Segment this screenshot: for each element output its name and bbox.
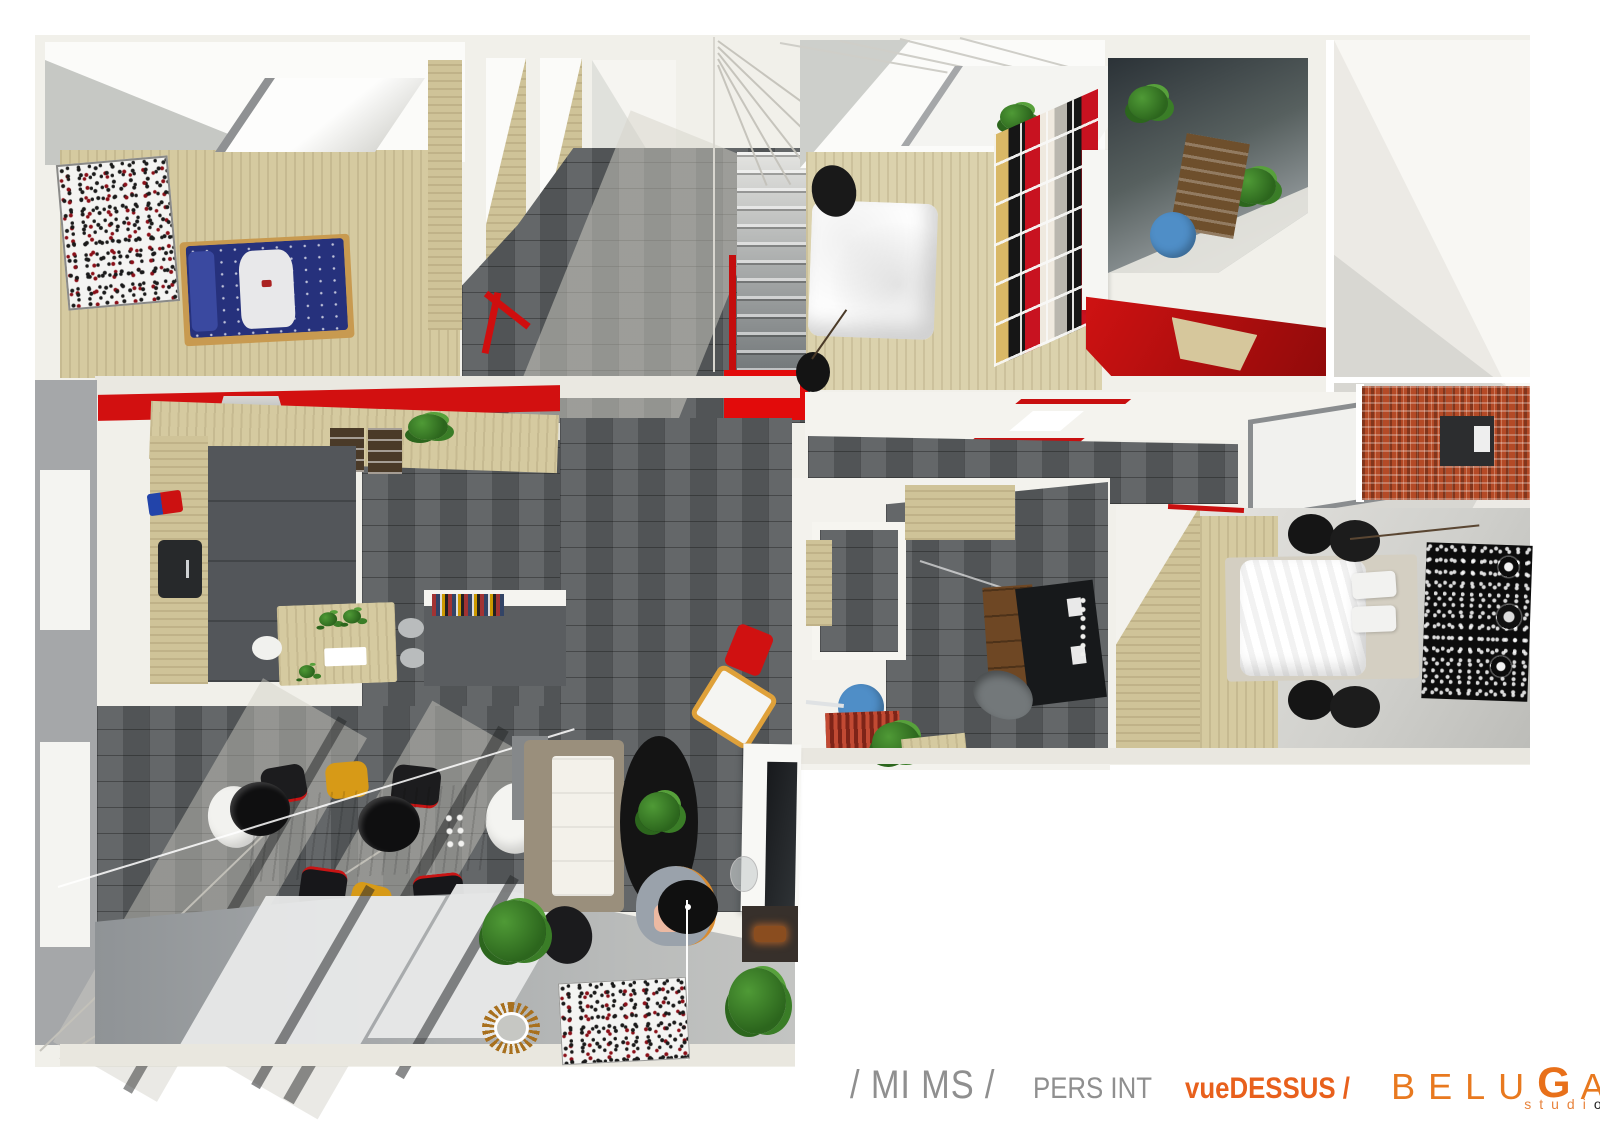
ensuite-plant-1 [1128,86,1168,120]
staircase [737,152,807,370]
sofa [524,740,624,912]
sun-mirror [482,1002,540,1054]
robot-chest-dot [261,280,271,288]
coffee-table-plant [638,792,680,832]
pendant-lamp-2 [358,796,420,852]
kids-wall-art [56,155,180,310]
attic-panel-1-white [486,58,526,225]
side-table-black [658,880,718,934]
brick-wall [1362,386,1530,500]
island-tray [324,647,367,666]
guest-wall-strip [1116,506,1200,758]
sideboard-base [424,606,566,686]
island-chair-white [252,636,282,660]
project-code: / MI MS / [850,1063,995,1108]
kitchen-island [277,602,398,686]
sofa-cushions [552,756,614,896]
guest-pillow-1 [1351,570,1397,599]
living-plant-small [728,968,786,1034]
brand-subtitle: studio [1524,1096,1600,1112]
red-cabinet-wood-inset [1172,311,1258,370]
guest-pillow-2 [1352,605,1397,633]
bathroom-wood-panel [806,540,832,626]
brand-block: BELUGA studio [1391,1050,1600,1108]
sink-faucet-chrome [186,560,189,578]
master-bed [808,200,939,340]
guest-pouf-4 [1330,686,1380,728]
guest-wall-wedge [1116,506,1200,645]
brand-subtitle-o: o [1594,1096,1600,1112]
pendant-lamp-1 [230,782,290,836]
brick-room-tv-screen [1474,426,1490,452]
brand-subtitle-text: studi [1524,1096,1594,1112]
left-window-1 [40,470,90,630]
kids-pillow [188,251,218,332]
kids-bed-frame [179,234,354,347]
caption-category: PERS INT [1033,1072,1152,1106]
attic-wall-line [1334,377,1530,383]
kitchen-drawers-2 [368,428,402,474]
sideboard [424,590,566,686]
counter-plant [408,414,448,440]
floorplan-render: / MI MS / PERS INT vueDESSUS / BELUGA st… [0,0,1600,1131]
white-column [1082,150,1108,310]
guest-duvet [1240,560,1366,676]
bathroom-wood-top [905,485,1015,540]
chevron-skylight [1010,411,1083,430]
toy-truck [147,490,184,517]
stair-stringer-red [729,255,736,373]
guest-pouf-3 [1288,680,1334,720]
left-window-2 [40,742,90,947]
kids-bed-duvet [186,238,349,338]
island-stool-1 [398,618,424,638]
placemats [443,811,467,852]
living-plant-big [482,900,546,962]
robot-print [238,249,296,330]
brick-room-tv-box [1440,416,1494,466]
caption-view-label: vueDESSUS / [1185,1072,1350,1106]
guest-pouf-1 [1288,514,1334,554]
blue-washbasin [1150,212,1196,258]
island-stool-2 [400,648,426,668]
vinyl-wall-art [1421,542,1532,702]
fireplace-logs [754,926,786,942]
guest-pouf-2 [1330,520,1380,562]
living-rug [558,977,690,1066]
brand-name-part1: BELU [1391,1066,1537,1108]
glass-vase [730,856,758,892]
island-top [277,602,398,686]
sun-mirror-center [497,1015,526,1041]
stair-pole [713,37,715,372]
tv-screen [765,762,798,913]
right-block-front-wall [778,748,1530,764]
book-row [432,594,504,616]
shower-bottles [1078,596,1088,656]
caption: / MI MS / PERS INT vueDESSUS / BELUGA st… [850,1038,1600,1108]
wardrobe-panel [428,60,462,330]
kitchen-sink [158,540,202,598]
fireplace-box [742,906,798,962]
